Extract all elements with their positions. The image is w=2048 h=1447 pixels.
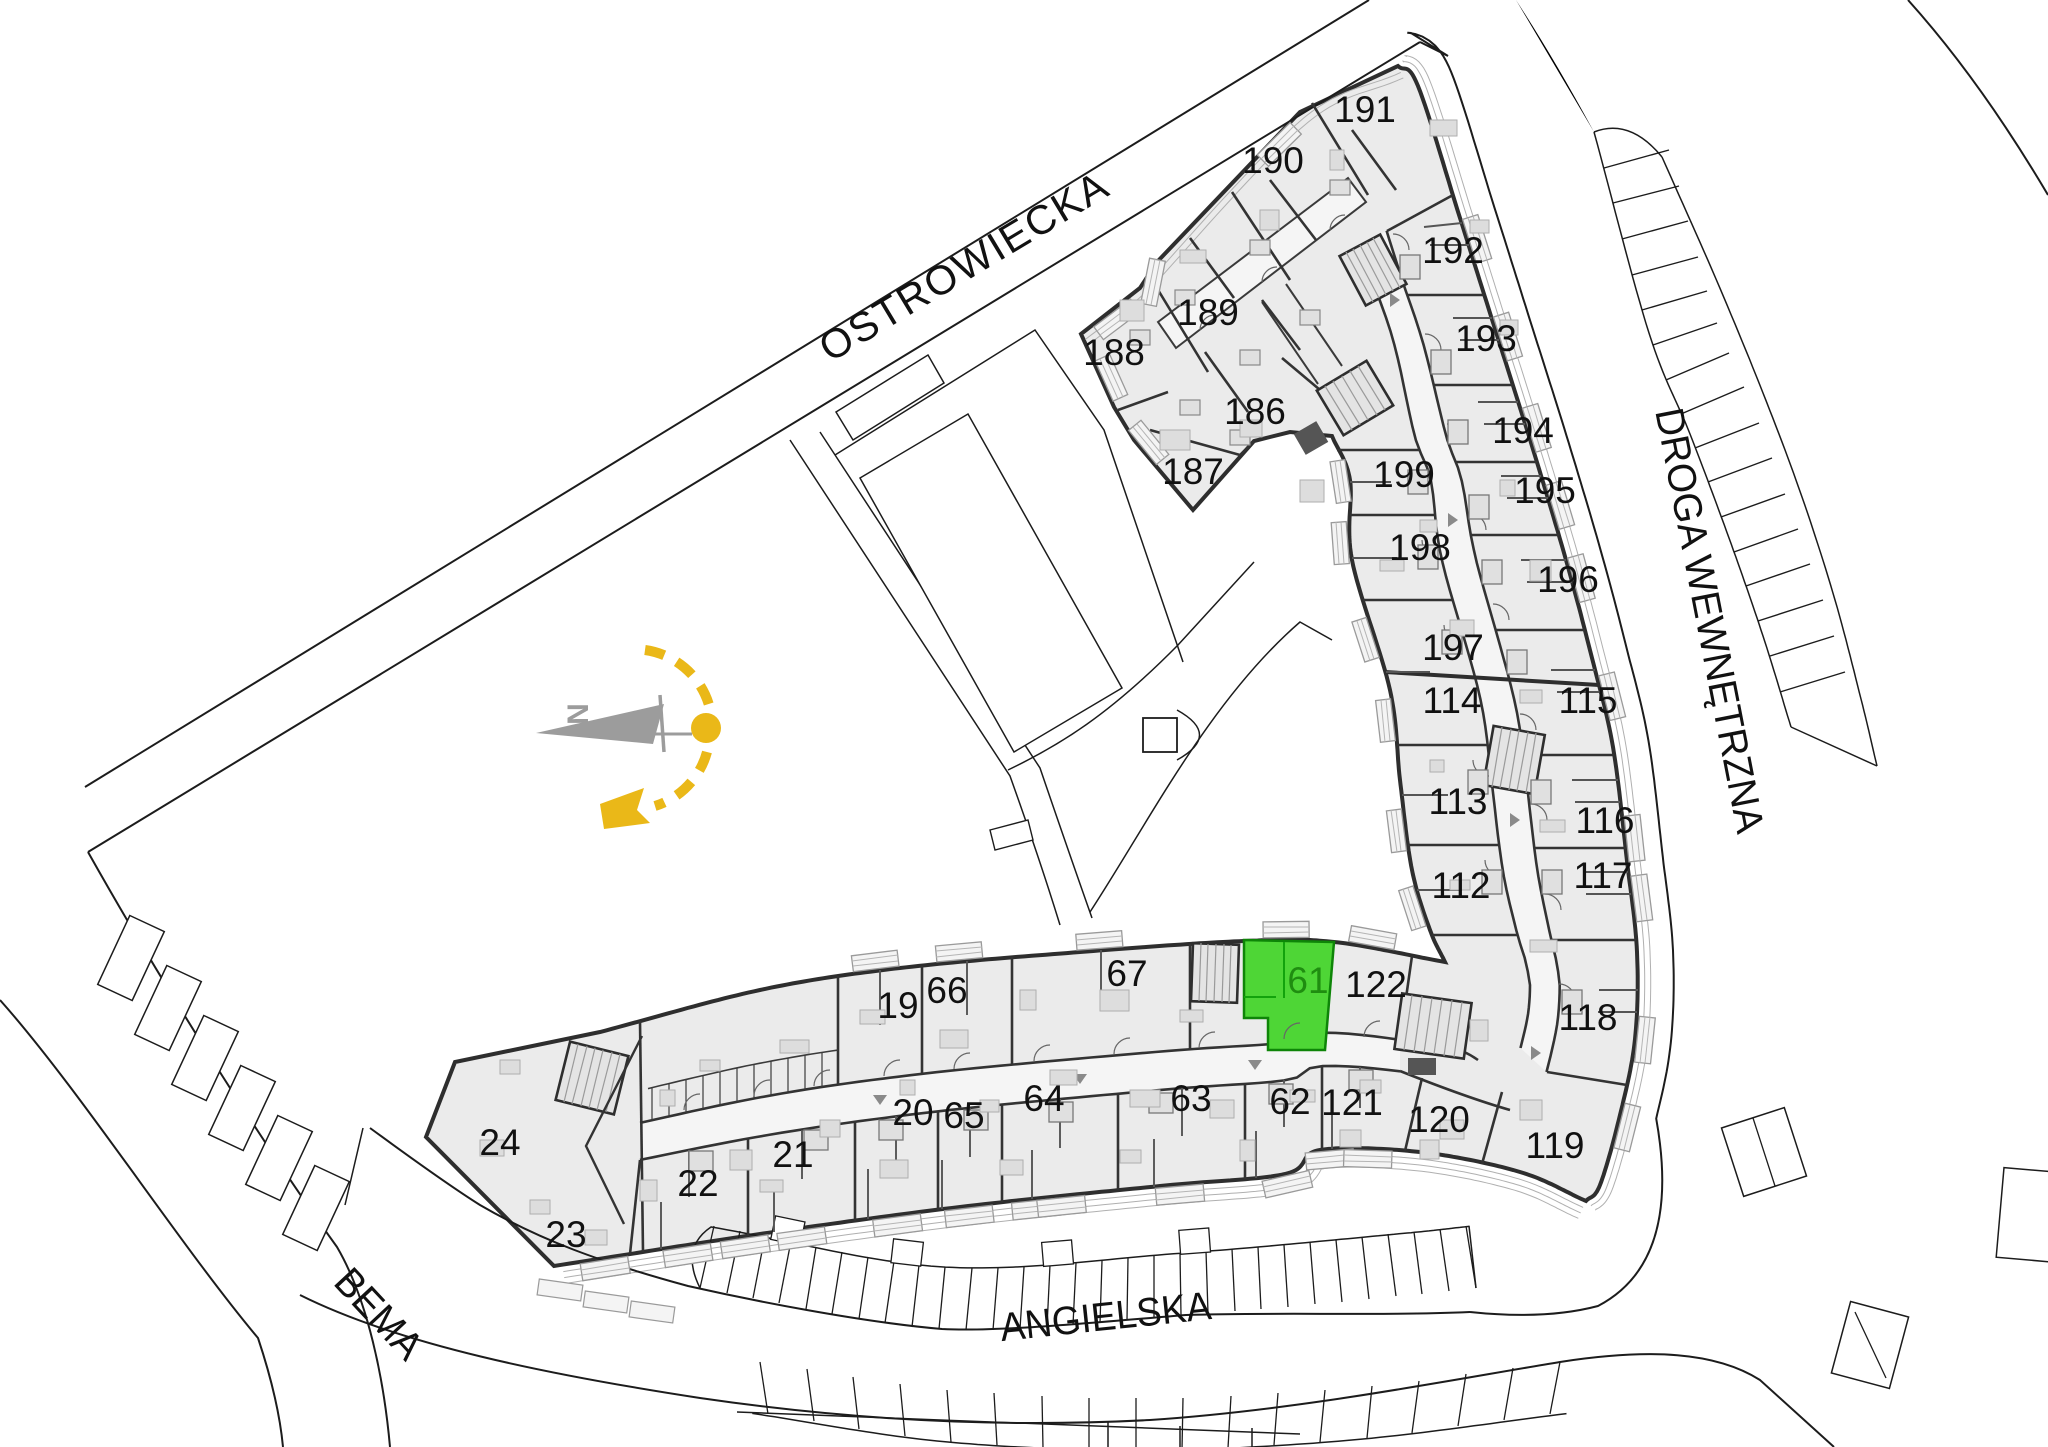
svg-text:19: 19: [877, 985, 918, 1026]
svg-text:199: 199: [1373, 454, 1435, 495]
svg-text:187: 187: [1162, 451, 1224, 492]
svg-text:113: 113: [1429, 781, 1488, 822]
svg-text:62: 62: [1269, 1081, 1310, 1122]
svg-text:114: 114: [1423, 680, 1482, 721]
svg-text:112: 112: [1432, 865, 1491, 906]
svg-text:119: 119: [1526, 1125, 1585, 1166]
svg-text:117: 117: [1574, 855, 1633, 896]
svg-text:186: 186: [1224, 391, 1286, 432]
svg-text:118: 118: [1559, 997, 1618, 1038]
svg-text:24: 24: [479, 1122, 520, 1163]
svg-text:23: 23: [545, 1214, 586, 1255]
svg-text:116: 116: [1576, 800, 1635, 841]
svg-text:N: N: [562, 703, 595, 725]
svg-text:196: 196: [1537, 559, 1599, 600]
svg-text:190: 190: [1242, 140, 1304, 181]
svg-text:121: 121: [1321, 1082, 1383, 1123]
svg-text:188: 188: [1083, 332, 1145, 373]
svg-text:67: 67: [1106, 953, 1147, 994]
svg-text:197: 197: [1422, 627, 1484, 668]
svg-text:195: 195: [1514, 470, 1576, 511]
svg-text:21: 21: [772, 1134, 813, 1175]
svg-text:193: 193: [1455, 318, 1517, 359]
svg-text:63: 63: [1170, 1078, 1211, 1119]
svg-text:198: 198: [1389, 527, 1451, 568]
svg-text:194: 194: [1492, 410, 1554, 451]
svg-text:61: 61: [1287, 960, 1328, 1001]
svg-text:20: 20: [892, 1092, 933, 1133]
svg-text:120: 120: [1408, 1099, 1470, 1140]
svg-text:115: 115: [1559, 680, 1618, 721]
svg-text:122: 122: [1345, 964, 1407, 1005]
svg-text:64: 64: [1023, 1078, 1064, 1119]
svg-text:22: 22: [677, 1163, 718, 1204]
svg-text:189: 189: [1177, 292, 1239, 333]
svg-text:191: 191: [1334, 89, 1396, 130]
svg-text:192: 192: [1422, 230, 1484, 271]
svg-text:66: 66: [926, 970, 967, 1011]
svg-text:65: 65: [943, 1095, 984, 1136]
